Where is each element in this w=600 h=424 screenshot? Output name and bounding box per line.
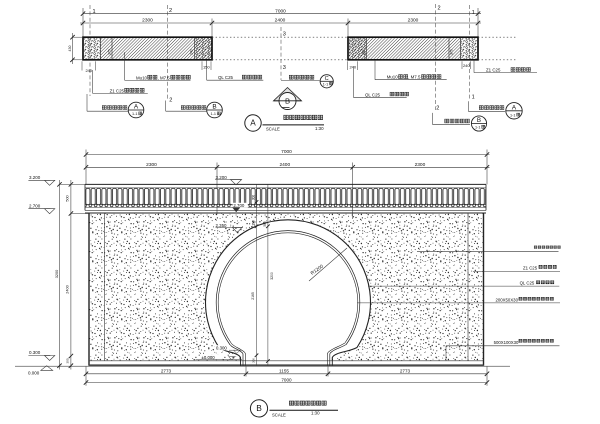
- svg-text:370: 370: [450, 49, 454, 55]
- svg-text:3200: 3200: [55, 270, 59, 278]
- svg-text:Mu10: Mu10: [136, 75, 148, 80]
- svg-text:2: 2: [169, 8, 172, 14]
- svg-text:0.300: 0.300: [216, 346, 227, 351]
- svg-text:1: 1: [472, 94, 475, 100]
- svg-text:585: 585: [263, 221, 267, 227]
- svg-text:1-1: 1-1: [475, 126, 481, 130]
- svg-text:430: 430: [68, 46, 72, 52]
- svg-text:1-1: 1-1: [510, 113, 516, 117]
- svg-text:1:30: 1:30: [311, 411, 320, 416]
- svg-text:2300: 2300: [146, 162, 157, 168]
- svg-text:±0.000: ±0.000: [202, 355, 216, 360]
- svg-text:0.000: 0.000: [28, 371, 40, 376]
- svg-text:240: 240: [463, 63, 470, 68]
- svg-text:3: 3: [283, 32, 286, 38]
- svg-text:300: 300: [252, 358, 256, 363]
- svg-text:B: B: [477, 117, 481, 124]
- svg-text:1: 1: [472, 10, 475, 16]
- svg-text:370: 370: [108, 49, 112, 55]
- svg-text:2400: 2400: [279, 162, 290, 168]
- svg-text:Z1 C25: Z1 C25: [110, 88, 125, 93]
- svg-text:1:30: 1:30: [315, 126, 324, 131]
- svg-text:240: 240: [361, 49, 365, 55]
- svg-text:3: 3: [283, 65, 286, 71]
- svg-text:SCALE: SCALE: [266, 127, 280, 132]
- svg-text:500: 500: [66, 195, 70, 201]
- svg-text:300: 300: [66, 358, 70, 363]
- svg-text:1-1: 1-1: [211, 112, 217, 116]
- svg-text:7000: 7000: [281, 149, 292, 155]
- svg-text:150: 150: [252, 220, 256, 226]
- svg-text:B: B: [256, 403, 262, 413]
- svg-text:C: C: [325, 76, 329, 82]
- svg-text:QL C25: QL C25: [218, 75, 234, 80]
- svg-text:2: 2: [169, 97, 172, 103]
- svg-text:1-1: 1-1: [132, 112, 138, 116]
- svg-text:3.200: 3.200: [216, 175, 228, 180]
- svg-text:7000: 7000: [281, 377, 292, 382]
- svg-text:QL C25: QL C25: [520, 281, 535, 286]
- svg-text:A: A: [134, 104, 139, 111]
- svg-text:240: 240: [85, 68, 92, 73]
- svg-text:1: 1: [93, 9, 96, 15]
- svg-text:2773: 2773: [161, 369, 172, 374]
- svg-text:1-1: 1-1: [323, 82, 329, 86]
- svg-text:, M7.5: , M7.5: [408, 75, 421, 80]
- svg-text:2300: 2300: [415, 162, 426, 168]
- svg-text:0.300: 0.300: [29, 350, 41, 355]
- svg-text:240: 240: [190, 49, 194, 55]
- svg-text:QL C25: QL C25: [365, 92, 381, 97]
- svg-text:2300: 2300: [408, 18, 419, 24]
- svg-text:A: A: [512, 104, 517, 111]
- svg-text:2: 2: [436, 106, 439, 112]
- svg-text:2165: 2165: [251, 292, 255, 300]
- svg-text:2400: 2400: [275, 18, 286, 24]
- svg-text:B: B: [285, 96, 290, 105]
- svg-text:Mu10: Mu10: [387, 75, 399, 80]
- svg-text:3200: 3200: [270, 272, 274, 280]
- svg-text:300: 300: [252, 195, 256, 201]
- svg-text:B: B: [212, 104, 216, 111]
- svg-text:3.200: 3.200: [29, 175, 41, 180]
- svg-text:1155: 1155: [279, 369, 289, 374]
- svg-text:2773: 2773: [400, 369, 411, 374]
- svg-text:SCALE: SCALE: [272, 412, 286, 417]
- svg-text:200X50X30: 200X50X30: [496, 297, 519, 302]
- svg-text:500X100X30: 500X100X30: [494, 340, 519, 345]
- svg-text:7000: 7000: [275, 9, 286, 15]
- svg-text:Z1 C25: Z1 C25: [523, 265, 538, 270]
- svg-text:Z1 C25: Z1 C25: [486, 68, 501, 73]
- svg-text:A: A: [250, 119, 256, 128]
- svg-text:2: 2: [438, 6, 441, 12]
- svg-text:2.700: 2.700: [29, 204, 41, 209]
- svg-text:, M7.5: , M7.5: [158, 75, 171, 80]
- svg-text:2400: 2400: [66, 285, 70, 293]
- svg-text:2300: 2300: [142, 18, 153, 24]
